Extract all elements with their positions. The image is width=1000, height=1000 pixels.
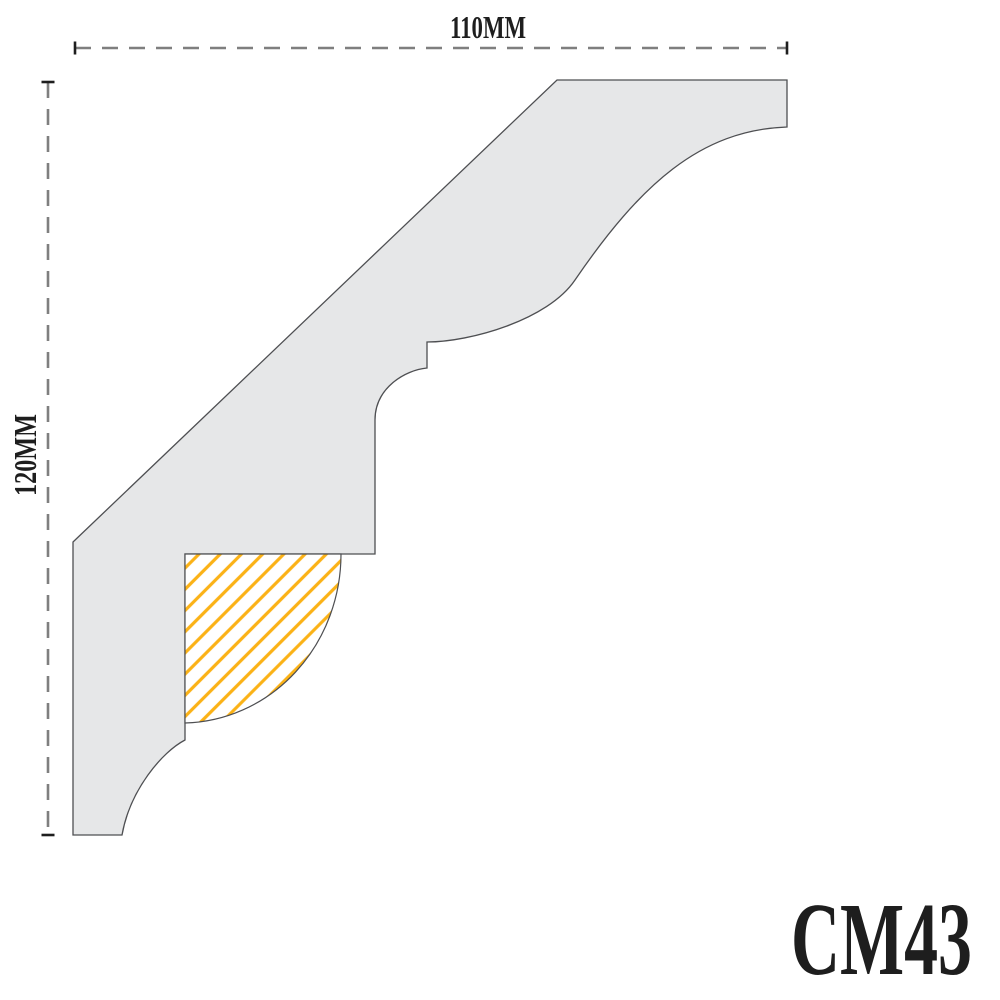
coving-profile-diagram-page: 110MM 120MM CM43 [0,0,1000,1000]
width-dimension-label: 110MM [450,9,526,45]
product-code-label: CM43 [791,882,972,997]
hatch-region [185,554,341,723]
molding-profile-shape [73,80,787,835]
coving-profile-diagram: 110MM 120MM CM43 [0,0,1000,1000]
height-dimension-label: 120MM [7,414,43,496]
